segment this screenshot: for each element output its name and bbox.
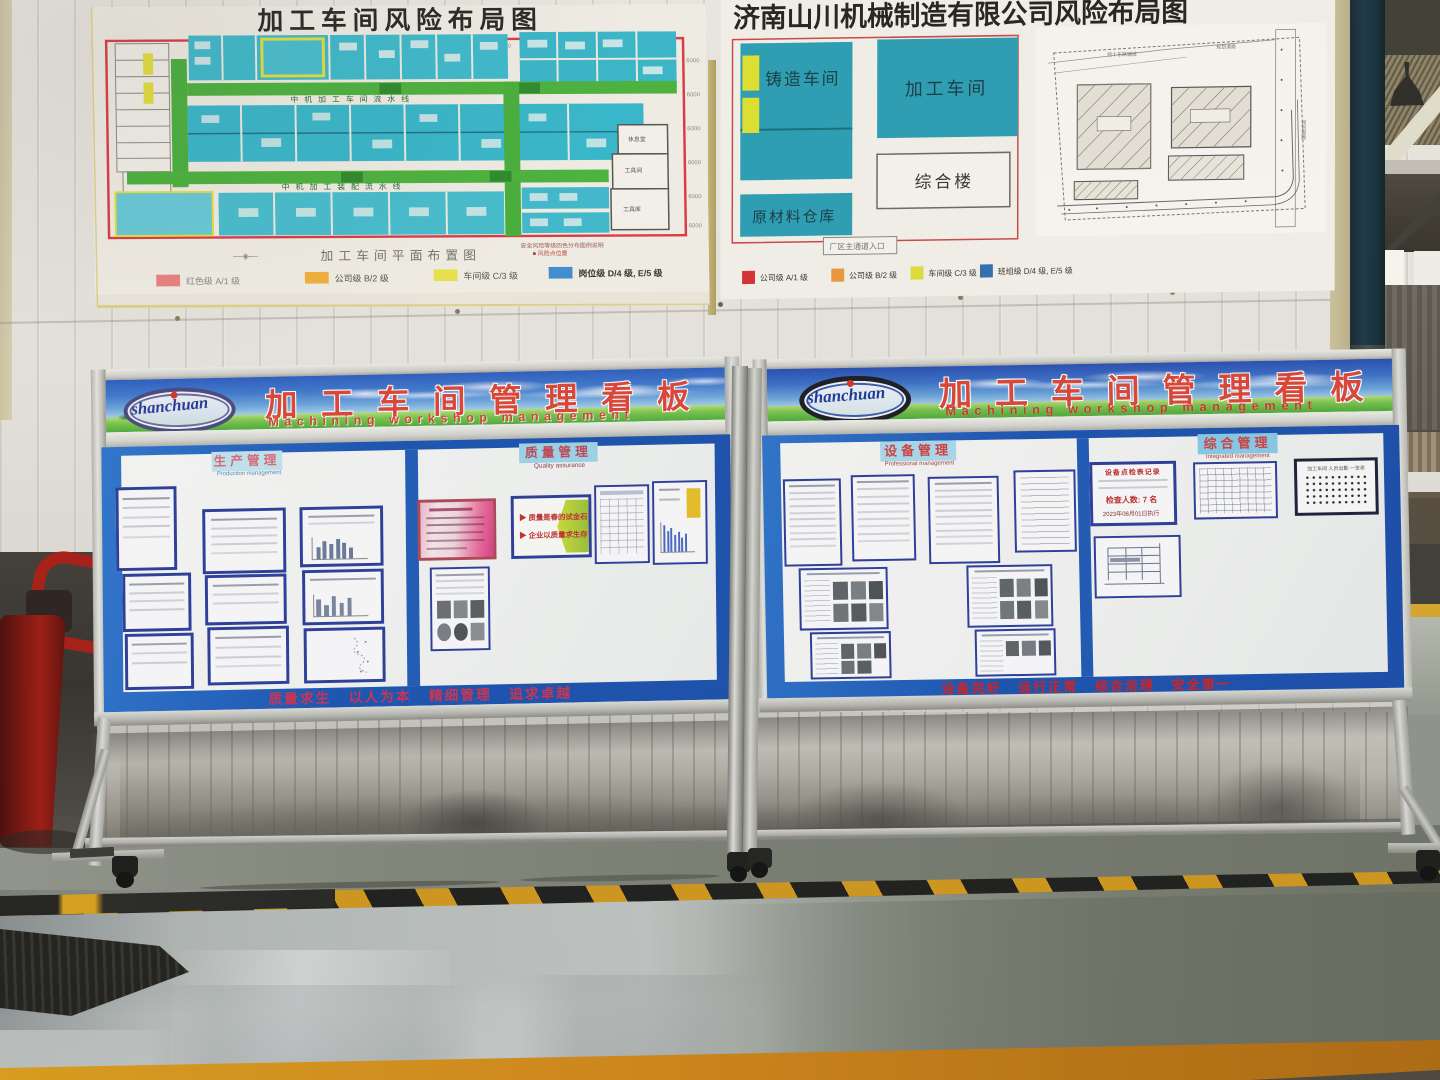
svg-text:工具间: 工具间 [624, 166, 642, 174]
svg-text:铸造车间: 铸造车间 [765, 69, 840, 89]
svg-text:6000: 6000 [688, 194, 702, 200]
svg-text:休息室: 休息室 [628, 135, 646, 143]
svg-text:工具库: 工具库 [623, 205, 641, 213]
svg-text:厂区主通道入口: 厂区主通道入口 [829, 241, 884, 252]
svg-text:红色级 A/1 级: 红色级 A/1 级 [186, 275, 240, 286]
svg-text:公司级 B/2 级: 公司级 B/2 级 [335, 272, 389, 283]
svg-text:岗位级 D/4 级, E/5 级: 岗位级 D/4 级, E/5 级 [578, 267, 663, 278]
svg-text:规划道路: 规划道路 [1300, 119, 1306, 141]
svg-text:车间级 C/3 级: 车间级 C/3 级 [928, 268, 976, 279]
svg-text:■ 风险点位置: ■ 风险点位置 [532, 249, 567, 257]
svg-text:公司级 A/1 级: 公司级 A/1 级 [760, 272, 808, 283]
svg-text:综合楼: 综合楼 [915, 172, 974, 192]
svg-text:加工车间: 加工车间 [905, 78, 988, 99]
svg-text:规划道路: 规划道路 [1216, 43, 1236, 50]
svg-text:6000: 6000 [687, 126, 701, 132]
svg-text:6000: 6000 [686, 58, 700, 64]
svg-text:中机加工车间流水线: 中机加工车间流水线 [290, 94, 415, 105]
svg-text:6000: 6000 [688, 160, 702, 166]
svg-text:加工车间平面布置图: 加工车间平面布置图 [320, 249, 481, 264]
svg-text:6000: 6000 [687, 92, 701, 98]
svg-text:加工车间风险布局图: 加工车间风险布局图 [257, 5, 543, 35]
svg-text:经十东路辅道: 经十东路辅道 [1107, 51, 1137, 58]
svg-text:班组级 D/4 级, E/5 级: 班组级 D/4 级, E/5 级 [998, 265, 1073, 276]
svg-text:车间级 C/3 级: 车间级 C/3 级 [463, 270, 518, 281]
svg-text:公司级 B/2 级: 公司级 B/2 级 [849, 270, 897, 281]
svg-text:—◈—: —◈— [233, 251, 258, 261]
svg-text:原材料仓库: 原材料仓库 [752, 208, 836, 226]
svg-text:6000: 6000 [689, 223, 703, 229]
svg-text:中机加工装配流水线: 中机加工装配流水线 [282, 181, 407, 192]
